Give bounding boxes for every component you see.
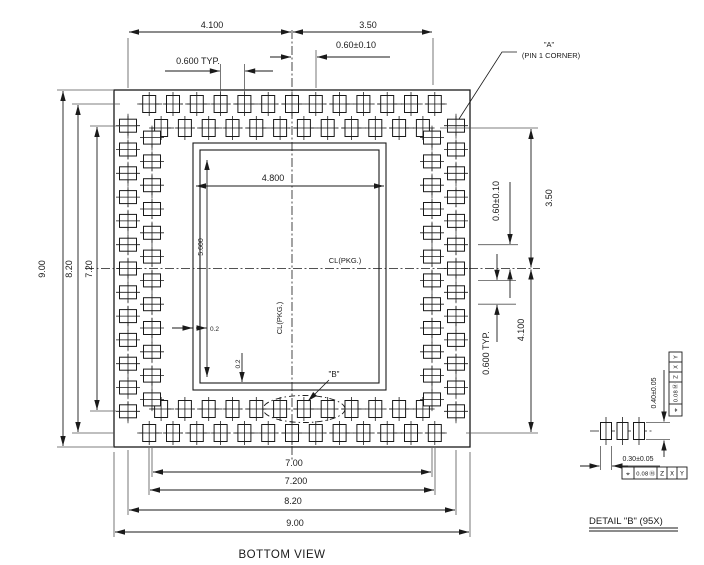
pad [116, 401, 140, 421]
pad [187, 421, 207, 445]
detail-pad [617, 417, 628, 445]
fcf-h-datum3: Y [679, 471, 684, 478]
pad [330, 421, 350, 445]
pad [139, 421, 159, 445]
pad [425, 92, 445, 116]
dim-label-top-4100: 4.100 [201, 20, 224, 30]
detail-pad [634, 417, 645, 445]
feature-control-frame-vertical: Y X Z 0.08Ⓜ ⌖ [669, 352, 682, 416]
pad [318, 116, 338, 140]
package-drawing: 4.100 3.50 0.60±0.10 0.600 TYP. 9.00 8.2… [0, 0, 704, 565]
pad [139, 92, 159, 116]
pad [140, 151, 164, 171]
pad [377, 421, 397, 445]
pad [140, 270, 164, 290]
view-title: BOTTOM VIEW [238, 549, 325, 561]
dim-label-top-0600: 0.600 TYP. [176, 56, 220, 66]
pad [116, 354, 140, 374]
pad [401, 92, 421, 116]
pad [140, 389, 164, 409]
fcf-h-position-symbol: ⌖ [626, 470, 630, 478]
pad [187, 92, 207, 116]
pad [420, 366, 444, 386]
pad [444, 116, 468, 136]
pad [116, 187, 140, 207]
centerline-label-vertical: CL(PKG.) [275, 301, 284, 334]
pad [365, 397, 385, 421]
pad [444, 140, 468, 160]
pad [282, 92, 302, 116]
pad [420, 270, 444, 290]
pad [306, 421, 326, 445]
dim-label-offset-y: 0.2 [235, 359, 242, 368]
pad [116, 330, 140, 350]
pad [116, 163, 140, 183]
detail-pads [590, 417, 654, 445]
feature-control-frame-horizontal: ⌖ 0.08Ⓜ Z X Y [622, 467, 687, 479]
pad [420, 389, 444, 409]
pad [116, 235, 140, 255]
dim-label-bottom-900: 9.00 [286, 518, 304, 528]
pad [420, 247, 444, 267]
dim-label-offset-x: 0.2 [210, 326, 219, 333]
dim-label-bottom-700: 7.00 [285, 458, 303, 468]
fcf-v-datum2: X [674, 365, 680, 369]
pad [246, 116, 266, 140]
pad [444, 187, 468, 207]
pad [353, 92, 373, 116]
pad [223, 116, 243, 140]
pad [444, 401, 468, 421]
pad [389, 397, 409, 421]
pad [294, 397, 314, 421]
pad [365, 116, 385, 140]
pad [282, 421, 302, 445]
pad [116, 211, 140, 231]
detail-b-title: DETAIL "B" (95X) [589, 516, 663, 527]
dim-label-right-4100: 4.100 [516, 319, 526, 342]
pad [342, 397, 362, 421]
pad [444, 235, 468, 255]
dim-label-right-0600: 0.600 TYP. [481, 331, 491, 375]
pad [353, 421, 373, 445]
dim-label-left-720: 7.20 [84, 260, 94, 278]
dim-label-bottom-7200: 7.200 [285, 476, 308, 486]
pad [420, 318, 444, 338]
pad [444, 330, 468, 350]
pad [175, 116, 195, 140]
pad [116, 282, 140, 302]
fcf-h-tolerance: 0.08Ⓜ [636, 470, 655, 478]
pad [163, 421, 183, 445]
pad [140, 342, 164, 362]
pad [140, 175, 164, 195]
detail-pad-length-label: 0.40±0.05 [651, 377, 658, 408]
pad [199, 397, 219, 421]
pad [163, 92, 183, 116]
pad [223, 397, 243, 421]
fcf-h-datum2: X [670, 471, 674, 478]
fcf-v-datum3: Y [674, 355, 680, 360]
pad [116, 306, 140, 326]
pad [116, 259, 140, 279]
pad [211, 421, 231, 445]
fcf-h-datum1: Z [660, 471, 664, 478]
pad [389, 116, 409, 140]
pad [140, 199, 164, 219]
dim-label-inner-height: 5.600 [198, 238, 205, 256]
pad [234, 92, 254, 116]
pad [175, 397, 195, 421]
dim-label-left-820: 8.20 [64, 260, 74, 278]
pad [444, 163, 468, 183]
fcf-v-datum1: Z [674, 375, 680, 379]
pad [306, 92, 326, 116]
pad [234, 421, 254, 445]
pad [140, 247, 164, 267]
pad [420, 175, 444, 195]
pad [116, 140, 140, 160]
pad [140, 128, 164, 148]
pad [199, 116, 219, 140]
pad [294, 116, 314, 140]
pad [140, 294, 164, 314]
pad [318, 397, 338, 421]
pad [420, 199, 444, 219]
pad [330, 92, 350, 116]
detail-pad-width-label: 0.30±0.05 [622, 456, 653, 463]
pad [377, 92, 397, 116]
pad [444, 378, 468, 398]
pad [140, 318, 164, 338]
pin1-callout: "A" (PIN 1 CORNER) [459, 40, 581, 119]
pad [258, 421, 278, 445]
detail-b-callout-label: "B" [328, 370, 339, 379]
pad [211, 92, 231, 116]
pad [420, 151, 444, 171]
detail-b-view: 0.40±0.05 0.30±0.05 Y X Z 0.08Ⓜ ⌖ ⌖ 0.08… [580, 352, 687, 531]
dim-label-inner-width: 4.800 [262, 173, 285, 183]
pad [420, 223, 444, 243]
pad [258, 92, 278, 116]
pin1-callout-sub-label: (PIN 1 CORNER) [522, 51, 581, 60]
pad [444, 306, 468, 326]
centerline-label-horizontal: CL(PKG.) [329, 256, 362, 265]
pad [444, 354, 468, 374]
pad [342, 116, 362, 140]
pad [420, 342, 444, 362]
pad [401, 421, 421, 445]
pad [444, 282, 468, 302]
pad [425, 421, 445, 445]
drawing-sheet: 4.100 3.50 0.60±0.10 0.600 TYP. 9.00 8.2… [0, 0, 704, 565]
main-view: 4.100 3.50 0.60±0.10 0.600 TYP. 9.00 8.2… [37, 20, 581, 537]
fcf-v-position-symbol: ⌖ [672, 408, 680, 412]
pad [116, 378, 140, 398]
detail-pad [601, 417, 612, 445]
dim-label-bottom-820: 8.20 [284, 496, 302, 506]
dim-label-right-060: 0.60±0.10 [491, 181, 501, 221]
pad [420, 128, 444, 148]
pad [444, 259, 468, 279]
pad [444, 211, 468, 231]
dim-label-top-060: 0.60±0.10 [336, 40, 376, 50]
pin1-callout-label: "A" [544, 40, 555, 49]
dim-label-left-900: 9.00 [37, 260, 47, 278]
fcf-v-tolerance: 0.08Ⓜ [672, 383, 680, 402]
pad [140, 366, 164, 386]
dim-label-right-350: 3.50 [544, 189, 554, 207]
dim-label-top-350: 3.50 [359, 20, 377, 30]
pad [270, 116, 290, 140]
pad [420, 294, 444, 314]
pad [140, 223, 164, 243]
